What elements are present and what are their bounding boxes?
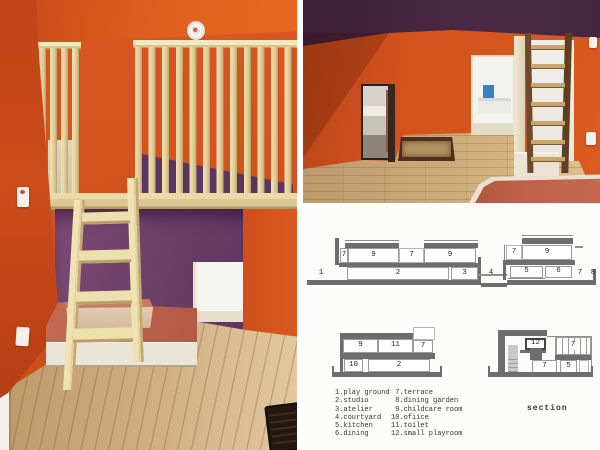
ground-line	[307, 280, 481, 285]
wall-plate	[589, 37, 597, 48]
legend-item: 6.dining	[335, 430, 390, 438]
room-cell: 7	[413, 340, 433, 353]
room-cell: 9	[348, 248, 399, 263]
legend-item: 1.play ground	[335, 389, 390, 397]
grade-label: 4	[486, 270, 496, 278]
ceiling-vent-icon	[187, 21, 205, 40]
ladder-rung	[73, 327, 133, 343]
blue-artwork	[483, 85, 494, 98]
white-cabinet	[478, 101, 511, 113]
room-cell: 10	[344, 359, 363, 372]
room-cell: 3	[451, 267, 478, 280]
legend-item: 2.studio	[335, 397, 390, 405]
ship-ladder-rung	[531, 102, 565, 107]
parapet	[335, 238, 339, 265]
grade-label: 8	[588, 270, 598, 278]
room-cell: 9	[424, 248, 476, 263]
canopy	[575, 246, 583, 248]
legend-item: 10.ofiice	[391, 414, 462, 422]
photo-loft-interior	[0, 0, 297, 450]
parapet	[478, 257, 481, 280]
floor-slab	[503, 260, 575, 265]
ship-ladder-rung	[531, 45, 565, 50]
grade-label: 7	[575, 270, 585, 278]
room-cell: 9	[343, 339, 378, 353]
window-frame	[388, 84, 395, 162]
architecture-collage: 7 9 7 9 2 3 7 9 5 6 1 4 7 8	[0, 0, 600, 450]
ship-ladder-rung	[531, 64, 565, 69]
floor-slab	[520, 350, 546, 353]
roof-slab	[522, 238, 573, 244]
floor-vent-grate	[264, 402, 297, 450]
inner-floor	[473, 123, 513, 135]
roof-box	[413, 327, 435, 340]
legend-item: 12.small playroom	[391, 430, 462, 438]
room-cell: 7	[340, 248, 348, 263]
legend-item: 5.kitchen	[335, 422, 390, 430]
legend-column-1: 1.play ground 2.studio 3.atelier 4.court…	[335, 389, 390, 439]
legend-item: 11.toilet	[391, 422, 462, 430]
legend-item: 8.dining garden	[391, 397, 462, 405]
ladder-rung	[79, 249, 131, 263]
ground-line	[488, 372, 593, 377]
ground-line	[332, 372, 442, 377]
roof-slab	[498, 330, 547, 336]
section-caption: section	[527, 405, 568, 413]
legend-item: 7.terrace	[391, 389, 462, 397]
ship-ladder-rung	[531, 157, 565, 162]
ship-ladder-rung	[531, 140, 565, 145]
room-cell: 11	[378, 339, 413, 353]
ship-ladder-rung	[531, 121, 565, 126]
doorway-white-room	[471, 55, 515, 135]
ground-line	[507, 280, 595, 285]
room-cell: 9	[522, 245, 572, 260]
room-cell: 5	[510, 266, 543, 278]
doorway-white-room	[193, 262, 243, 322]
room-cell: 2	[368, 359, 430, 372]
loft-railing-slats-right	[135, 47, 293, 193]
grade-label: 1	[316, 270, 326, 278]
legend-item: 3.atelier	[335, 406, 390, 414]
terrace-cell: 7	[506, 245, 522, 260]
ship-ladder-rung	[531, 83, 565, 88]
terrace-railing: 7	[555, 337, 591, 355]
legend-column-2: 7.terrace 8.dining garden 9.childcare ro…	[391, 389, 462, 439]
wall	[498, 330, 505, 373]
right-orange-wall	[243, 209, 297, 337]
stair-shaft	[508, 345, 518, 373]
courtyard-ground	[481, 283, 507, 287]
room-cell: 2	[347, 267, 449, 280]
wall-outlet-plate	[586, 132, 596, 145]
legend-item: 4.courtyard	[335, 414, 390, 422]
room-cell: 6	[545, 266, 572, 278]
photo-room-with-stair	[303, 0, 600, 203]
section-drawing-panel: 7 9 7 9 2 3 7 9 5 6 1 4 7 8	[303, 207, 600, 450]
legend-item: 9.childcare room	[391, 406, 462, 414]
wall-switch-plate	[17, 187, 29, 207]
wall-outlet-plate	[15, 327, 29, 347]
terrace-cell: 7	[399, 248, 424, 263]
ladder-rung	[82, 211, 130, 224]
floor-hatch-opening	[398, 137, 455, 161]
ladder-rung	[76, 290, 132, 304]
stair-base-box	[514, 152, 559, 177]
